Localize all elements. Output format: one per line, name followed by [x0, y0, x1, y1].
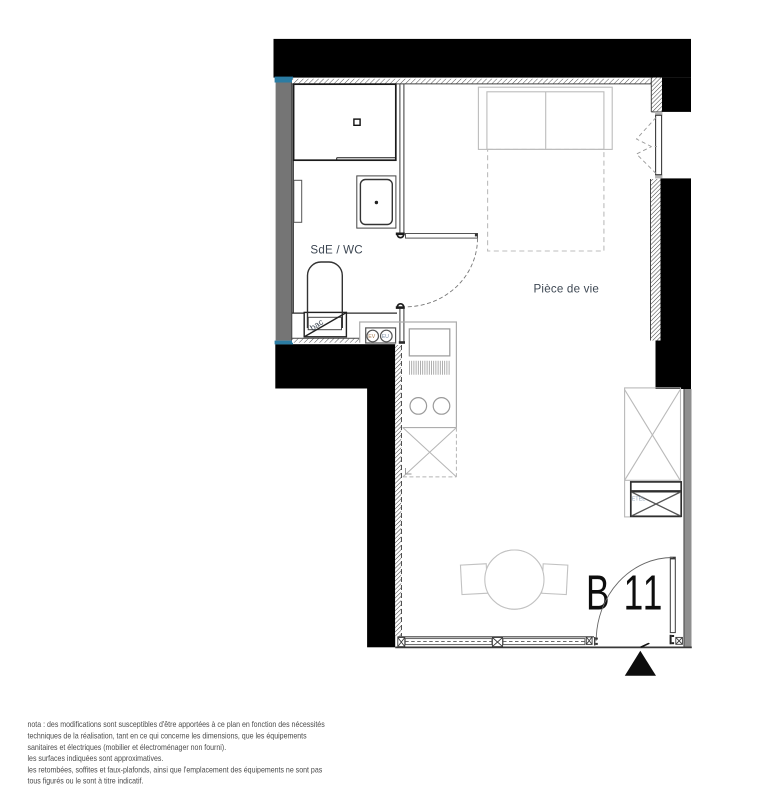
svg-text:nota : des modifications sont: nota : des modifications sont susceptibl… [28, 720, 325, 730]
svg-text:les retombées, soffites et fau: les retombées, soffites et faux-plafonds… [28, 765, 323, 775]
svg-text:EV: EV [368, 334, 375, 340]
svg-text:les surfaces indiquées sont ap: les surfaces indiquées sont approximativ… [28, 754, 164, 764]
svg-text:tous figurés ou le sont à titr: tous figurés ou le sont à titre indicati… [28, 776, 144, 786]
svg-text:sanitaires et électriques (mob: sanitaires et électriques (mobilier et é… [28, 742, 227, 752]
svg-text:Pièce de vie: Pièce de vie [534, 283, 600, 296]
svg-text:B 11: B 11 [586, 566, 665, 621]
svg-text:EU: EU [382, 334, 389, 340]
svg-text:ETEL: ETEL [632, 497, 646, 503]
svg-text:techniques de la réalisation,: techniques de la réalisation, tant en ce… [28, 731, 307, 741]
svg-text:SdE / WC: SdE / WC [310, 244, 363, 257]
